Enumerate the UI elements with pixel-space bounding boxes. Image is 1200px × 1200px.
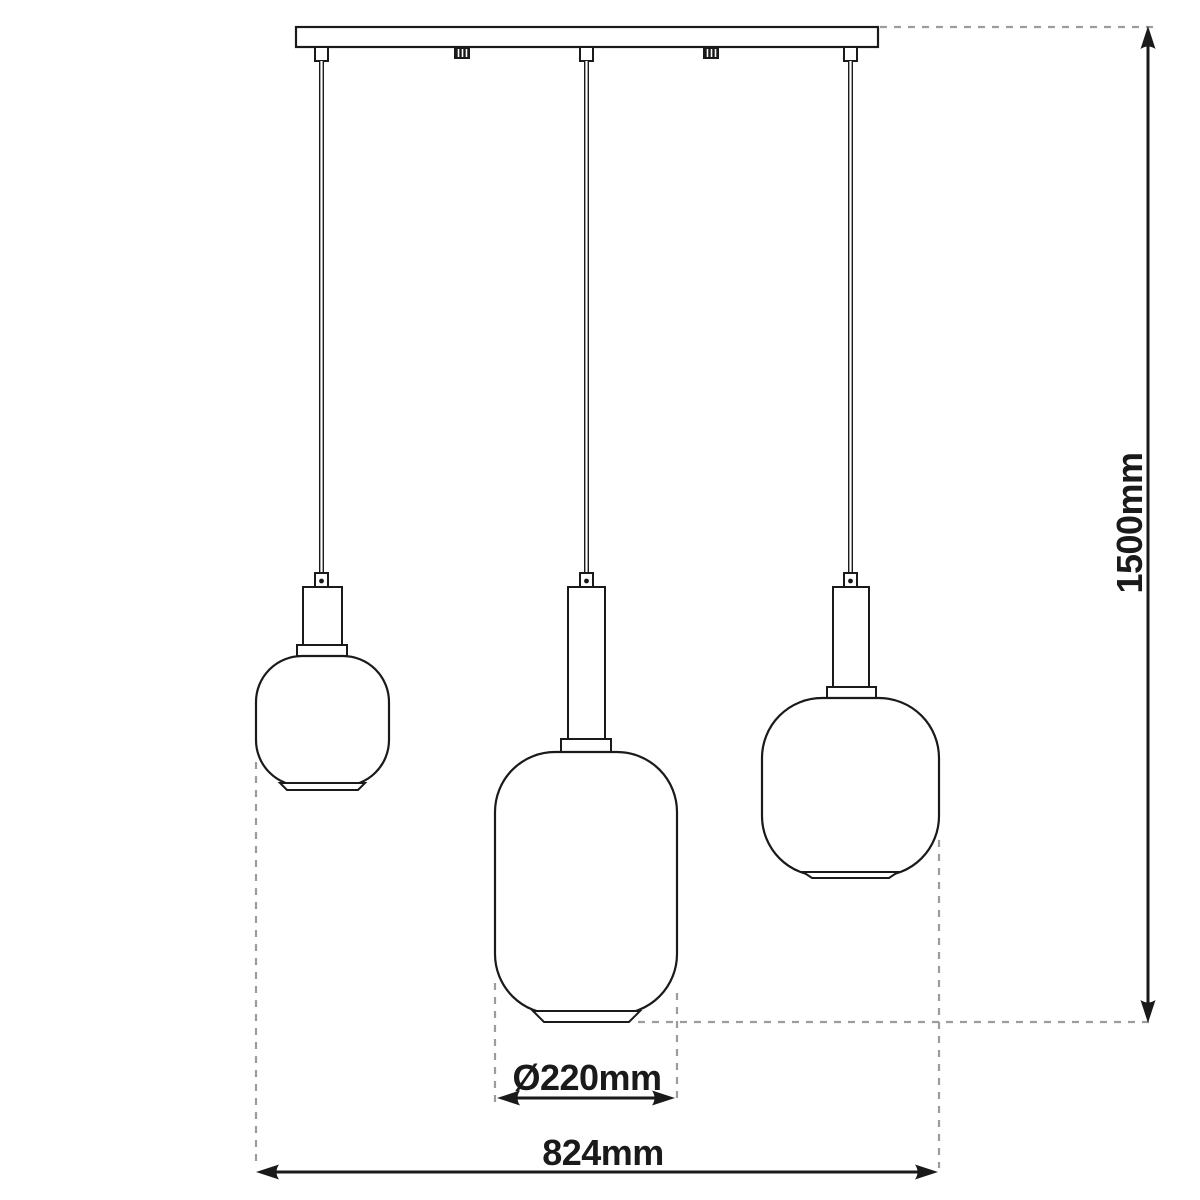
lamp-dimension-drawing: 1500mm Ø220mm 824mm xyxy=(0,0,1200,1200)
height-dimension-label: 1500mm xyxy=(1109,452,1150,593)
pendant-left xyxy=(256,573,389,790)
mounting-screw-right-icon xyxy=(703,47,719,59)
cord-grommet-center xyxy=(580,47,593,61)
shade-rim-left xyxy=(280,783,365,790)
shade-rim-right xyxy=(803,872,898,878)
glass-shade-right xyxy=(762,698,939,876)
glass-shade-left xyxy=(256,656,389,786)
pendant-center xyxy=(495,573,677,1022)
mounting-screw-left-icon xyxy=(454,47,470,59)
width-dimension-label: 824mm xyxy=(542,1132,664,1173)
canopy-plate xyxy=(296,27,878,47)
drawing-canvas: 1500mm Ø220mm 824mm xyxy=(0,0,1200,1200)
arrow-down-icon xyxy=(1141,1000,1156,1023)
glass-shade-center xyxy=(495,752,677,1014)
cord-grip-screw-center xyxy=(584,579,589,584)
socket-tube-right xyxy=(833,587,869,687)
pendant-right xyxy=(762,573,939,878)
cord-grip-screw-right xyxy=(848,579,853,584)
arrow-right-icon xyxy=(915,1165,938,1180)
socket-tube-left xyxy=(303,587,342,645)
cord-grommet-right xyxy=(844,47,857,61)
socket-ring-left xyxy=(297,645,347,656)
shade-rim-center xyxy=(533,1011,640,1022)
diameter-dimension-label: Ø220mm xyxy=(512,1057,661,1098)
arrow-left-icon xyxy=(256,1165,279,1180)
socket-ring-center xyxy=(561,739,611,752)
cord-grip-screw-left xyxy=(319,579,324,584)
ceiling-canopy xyxy=(296,27,878,61)
cord-grommet-left xyxy=(315,47,328,61)
socket-tube-center xyxy=(568,587,605,739)
arrow-up-icon xyxy=(1141,26,1156,49)
